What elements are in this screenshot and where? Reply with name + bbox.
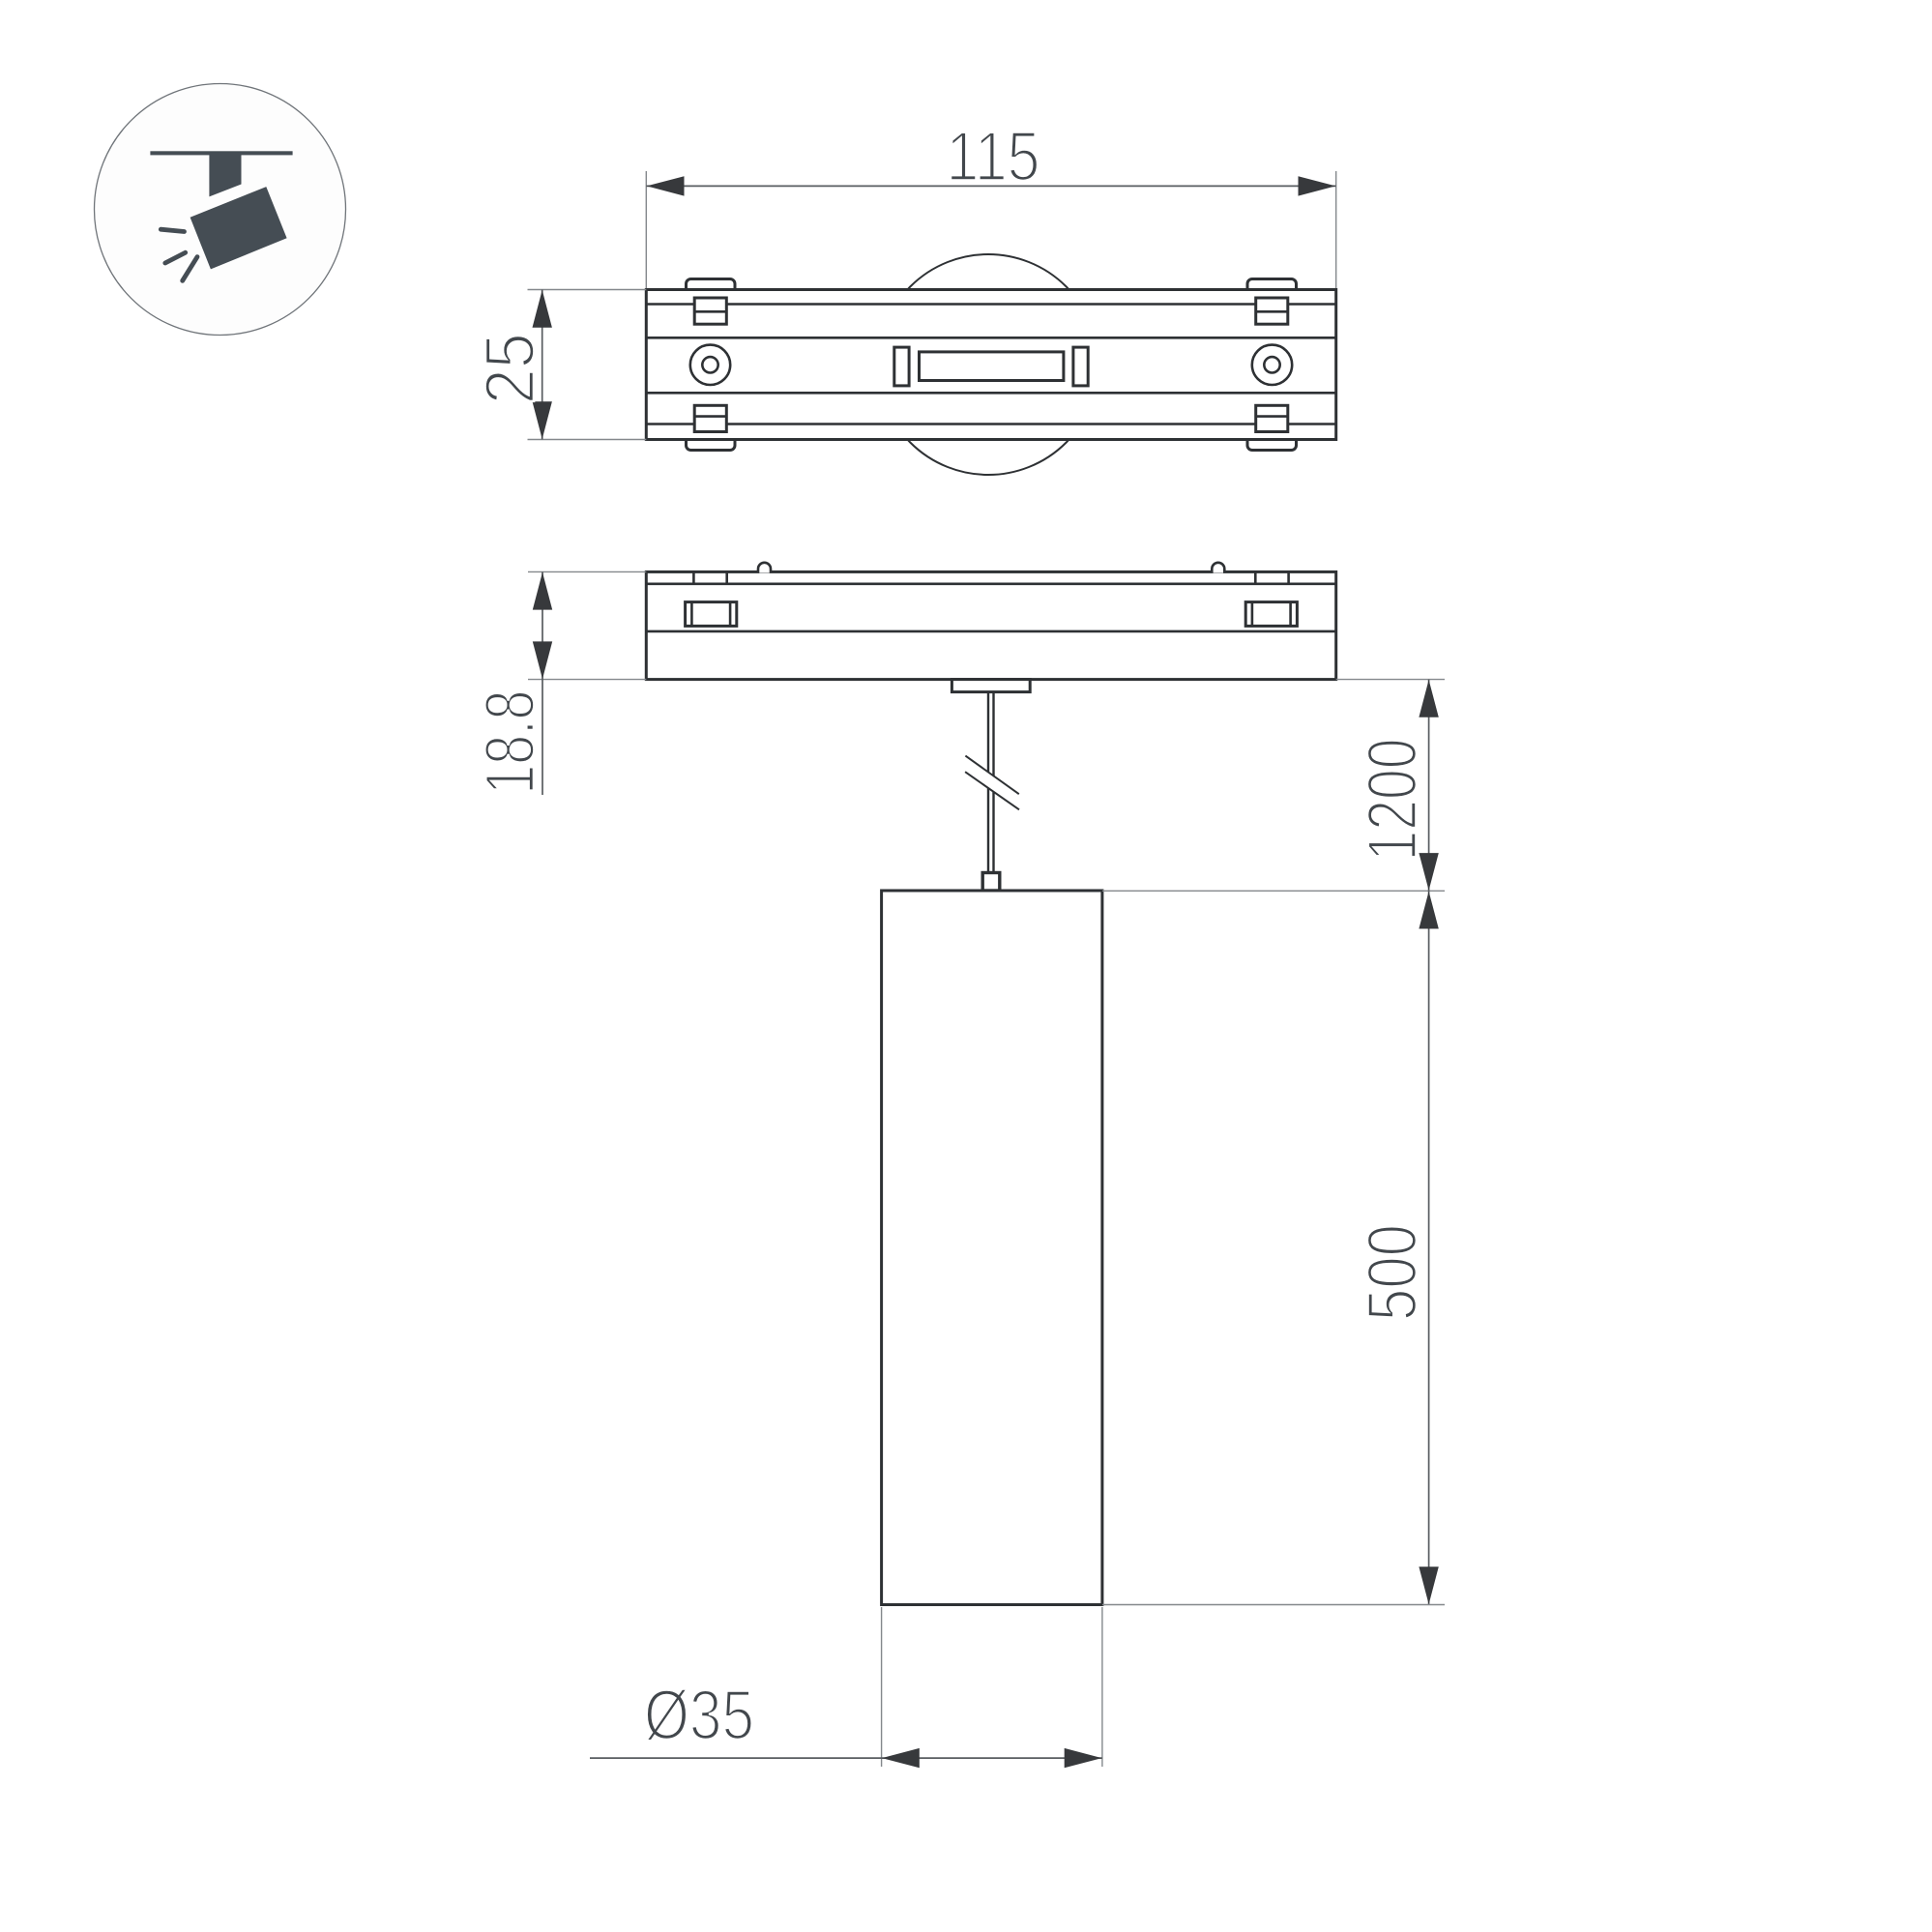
svg-text:500: 500 — [1355, 1224, 1432, 1321]
svg-text:115: 115 — [947, 119, 1040, 196]
svg-text:25: 25 — [472, 333, 549, 404]
svg-text:Ø35: Ø35 — [644, 1678, 754, 1755]
svg-text:1200: 1200 — [1355, 739, 1432, 862]
svg-text:18.8: 18.8 — [472, 690, 549, 795]
